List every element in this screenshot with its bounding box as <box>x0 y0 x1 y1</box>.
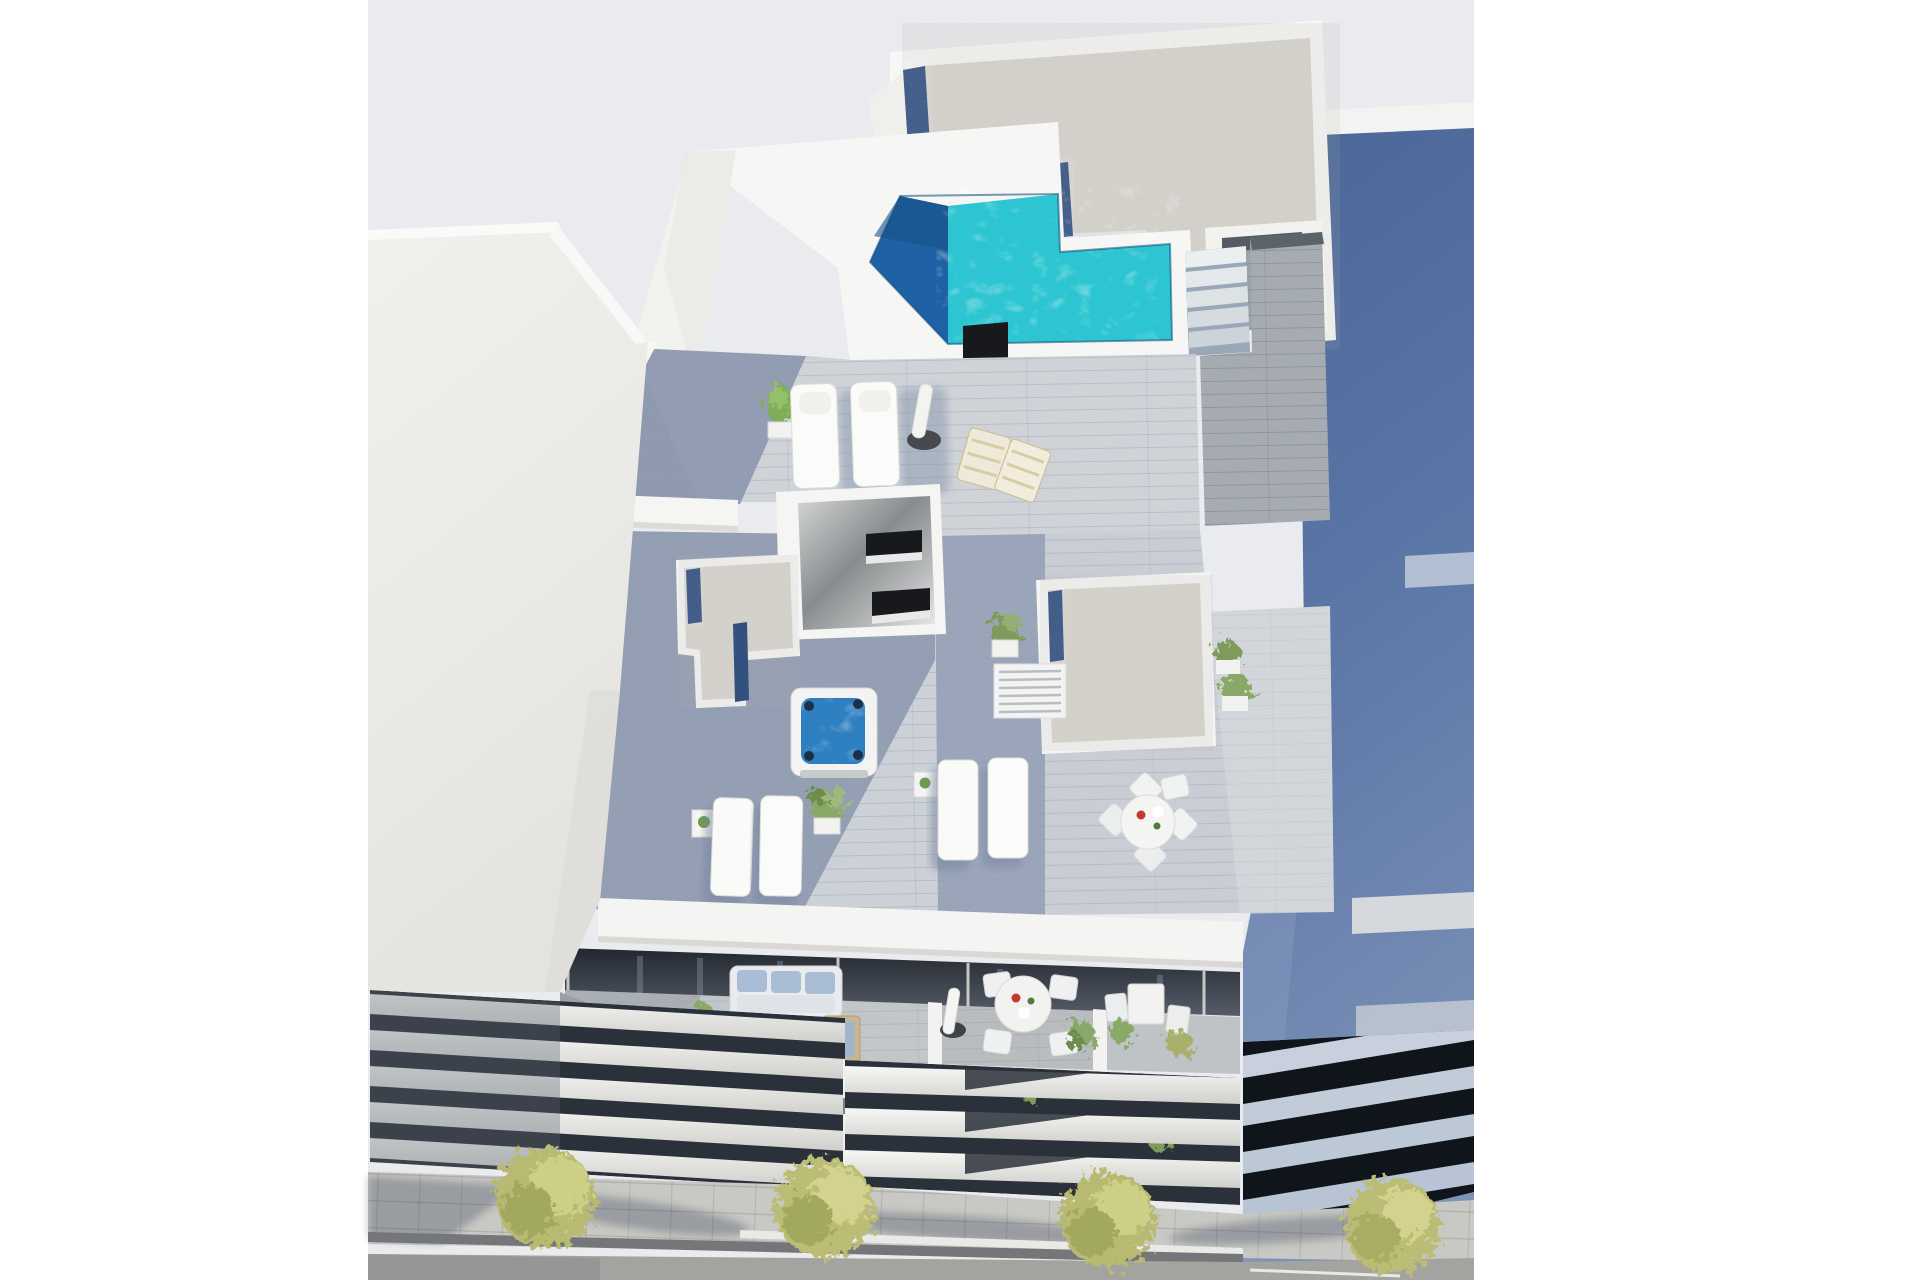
render-image: Aerial render of a modern white resident… <box>0 0 1920 1280</box>
potted-plants <box>766 384 794 438</box>
louver-box <box>994 664 1066 718</box>
jacuzzi <box>791 688 877 778</box>
pool-stairs <box>1180 240 1255 360</box>
gravel-block <box>1036 572 1216 754</box>
balcony-sofa <box>730 966 842 1018</box>
louver-slats <box>845 1066 1240 1188</box>
penthouse-skylight <box>776 484 946 640</box>
